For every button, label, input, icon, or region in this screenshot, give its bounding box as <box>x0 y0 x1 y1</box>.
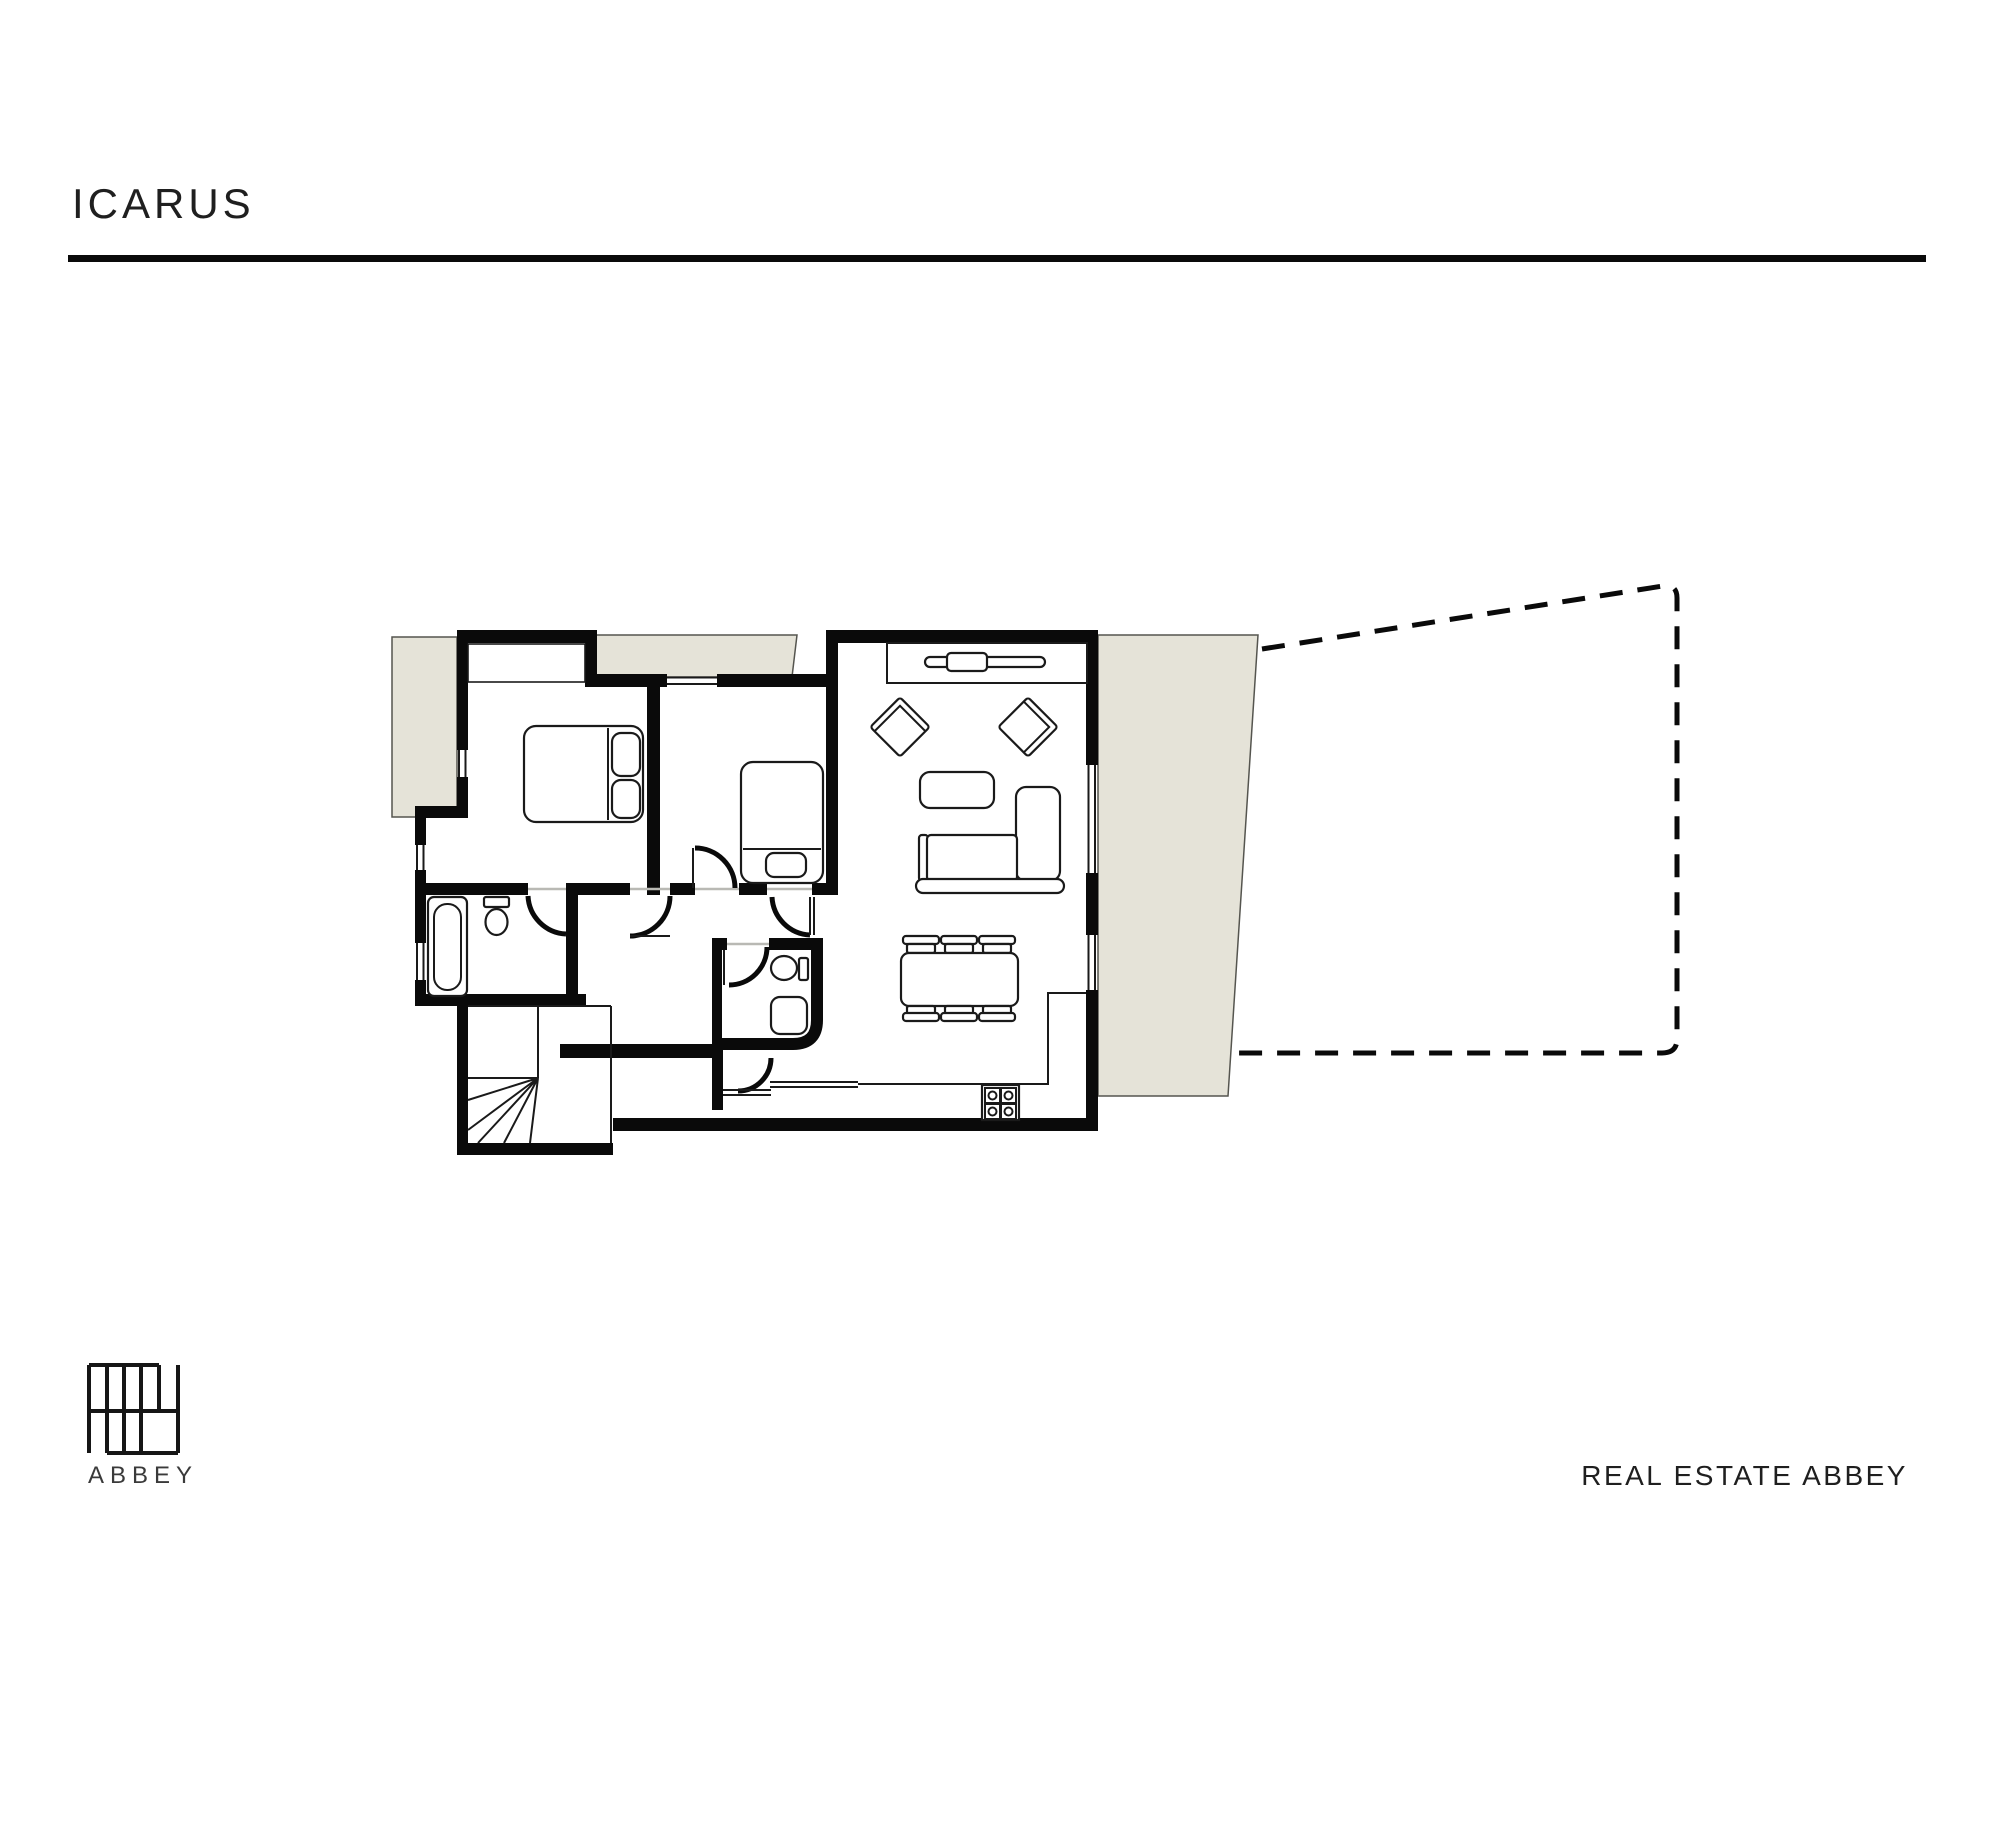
single-bed <box>741 762 823 883</box>
bathtub <box>428 897 467 996</box>
door-wc <box>724 944 769 985</box>
window-top <box>667 678 717 685</box>
window-right-1 <box>1089 765 1096 873</box>
balcony-left <box>392 637 457 817</box>
stove <box>982 1085 1019 1120</box>
logo-label: ABBEY <box>88 1462 198 1490</box>
toilet <box>484 897 509 935</box>
stairs <box>468 1006 611 1143</box>
dining-chairs-bottom <box>903 1006 1015 1021</box>
dining-set <box>901 936 1018 1021</box>
window-left-2 <box>417 845 424 870</box>
living-room-furniture <box>870 643 1087 893</box>
door-bedroom-1 <box>630 889 670 936</box>
tv-console <box>887 643 1087 683</box>
stair-treads <box>468 1078 538 1143</box>
armchair-left <box>870 697 929 756</box>
double-bed <box>524 726 643 822</box>
dining-table <box>901 953 1018 1006</box>
property-boundary-dashed <box>1232 586 1677 1053</box>
door-bathroom <box>528 889 566 934</box>
dining-chairs-top <box>903 936 1015 953</box>
coffee-table <box>920 772 994 808</box>
footer-brand: REAL ESTATE ABBEY <box>1581 1460 1908 1492</box>
window-left-1 <box>459 750 466 777</box>
terrace-right <box>1098 635 1258 1096</box>
bathroom-fixtures <box>428 897 509 996</box>
wc-sink <box>771 956 808 980</box>
window-right-2 <box>1089 935 1096 990</box>
door-entry <box>723 1058 771 1095</box>
wc-fixtures <box>771 956 808 1034</box>
wardrobe <box>468 644 585 682</box>
outdoor-areas <box>392 635 1258 1096</box>
door-hall-living <box>767 889 814 935</box>
wc-toilet <box>771 997 807 1034</box>
balcony-top <box>594 635 797 677</box>
armchair-right <box>998 697 1057 756</box>
door-bedroom-2 <box>693 848 739 889</box>
window-bathroom <box>417 943 424 980</box>
abbey-logo-icon <box>86 1362 186 1462</box>
floor-plan <box>0 0 2000 1828</box>
